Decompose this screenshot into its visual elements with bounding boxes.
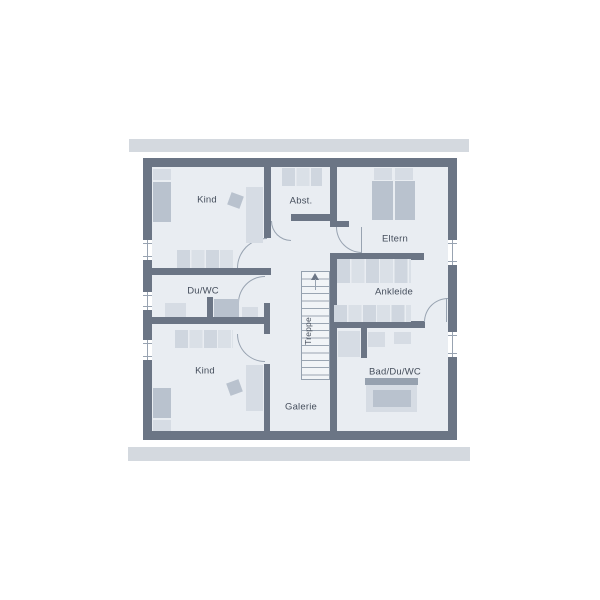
washbasin — [394, 332, 411, 344]
room-label-eltern: Eltern — [382, 234, 408, 245]
bed-pillow — [395, 168, 413, 180]
room-label-du-wc: Du/WC — [187, 286, 219, 297]
bed-pillow — [153, 420, 171, 431]
wall — [291, 214, 337, 221]
wall — [152, 268, 271, 275]
wall — [207, 297, 213, 317]
desk — [246, 187, 263, 243]
shower — [338, 331, 360, 357]
window — [143, 292, 152, 310]
room-label-abstellraum: Abst. — [290, 196, 313, 207]
room-label-bad-du-wc: Bad/Du/WC — [369, 367, 421, 378]
room-label-treppe: Treppe — [303, 317, 313, 345]
door-leaf-eltern — [361, 227, 362, 253]
wardrobe — [177, 250, 233, 268]
room-label-kind-top: Kind — [197, 195, 217, 206]
toilet — [368, 332, 385, 347]
door-leaf-bad — [446, 298, 447, 322]
wardrobe — [334, 305, 411, 322]
window — [448, 240, 457, 265]
wall — [264, 167, 271, 238]
wardrobe — [337, 259, 411, 283]
room-label-kind-bottom: Kind — [195, 366, 215, 377]
stair-arrow-stem — [315, 279, 316, 290]
floor-plan: Kind Abst. Eltern Du/WC Ankleide Treppe … — [0, 0, 600, 600]
bathtub-basin — [373, 390, 411, 407]
bed-divider — [393, 181, 395, 220]
wall — [361, 328, 367, 358]
wall — [336, 321, 425, 328]
wall — [264, 364, 270, 431]
bed-pillow — [374, 168, 392, 180]
bed — [153, 182, 171, 222]
bed-pillow — [153, 169, 171, 180]
room-label-galerie: Galerie — [285, 402, 317, 413]
cabinet — [282, 168, 322, 186]
roof-eave-bottom — [128, 447, 470, 461]
washbasin — [242, 307, 258, 317]
wall — [152, 317, 267, 324]
toilet — [165, 303, 186, 317]
wall — [330, 253, 337, 431]
wall — [264, 303, 270, 334]
window — [448, 332, 457, 357]
wardrobe — [175, 330, 233, 348]
bed — [153, 388, 171, 418]
room-label-ankleide: Ankleide — [375, 287, 413, 298]
shower — [214, 299, 239, 317]
window — [143, 340, 152, 360]
roof-eave-top — [129, 139, 469, 152]
bathtub-ledge — [365, 378, 418, 385]
desk — [246, 365, 263, 411]
window — [143, 240, 152, 260]
